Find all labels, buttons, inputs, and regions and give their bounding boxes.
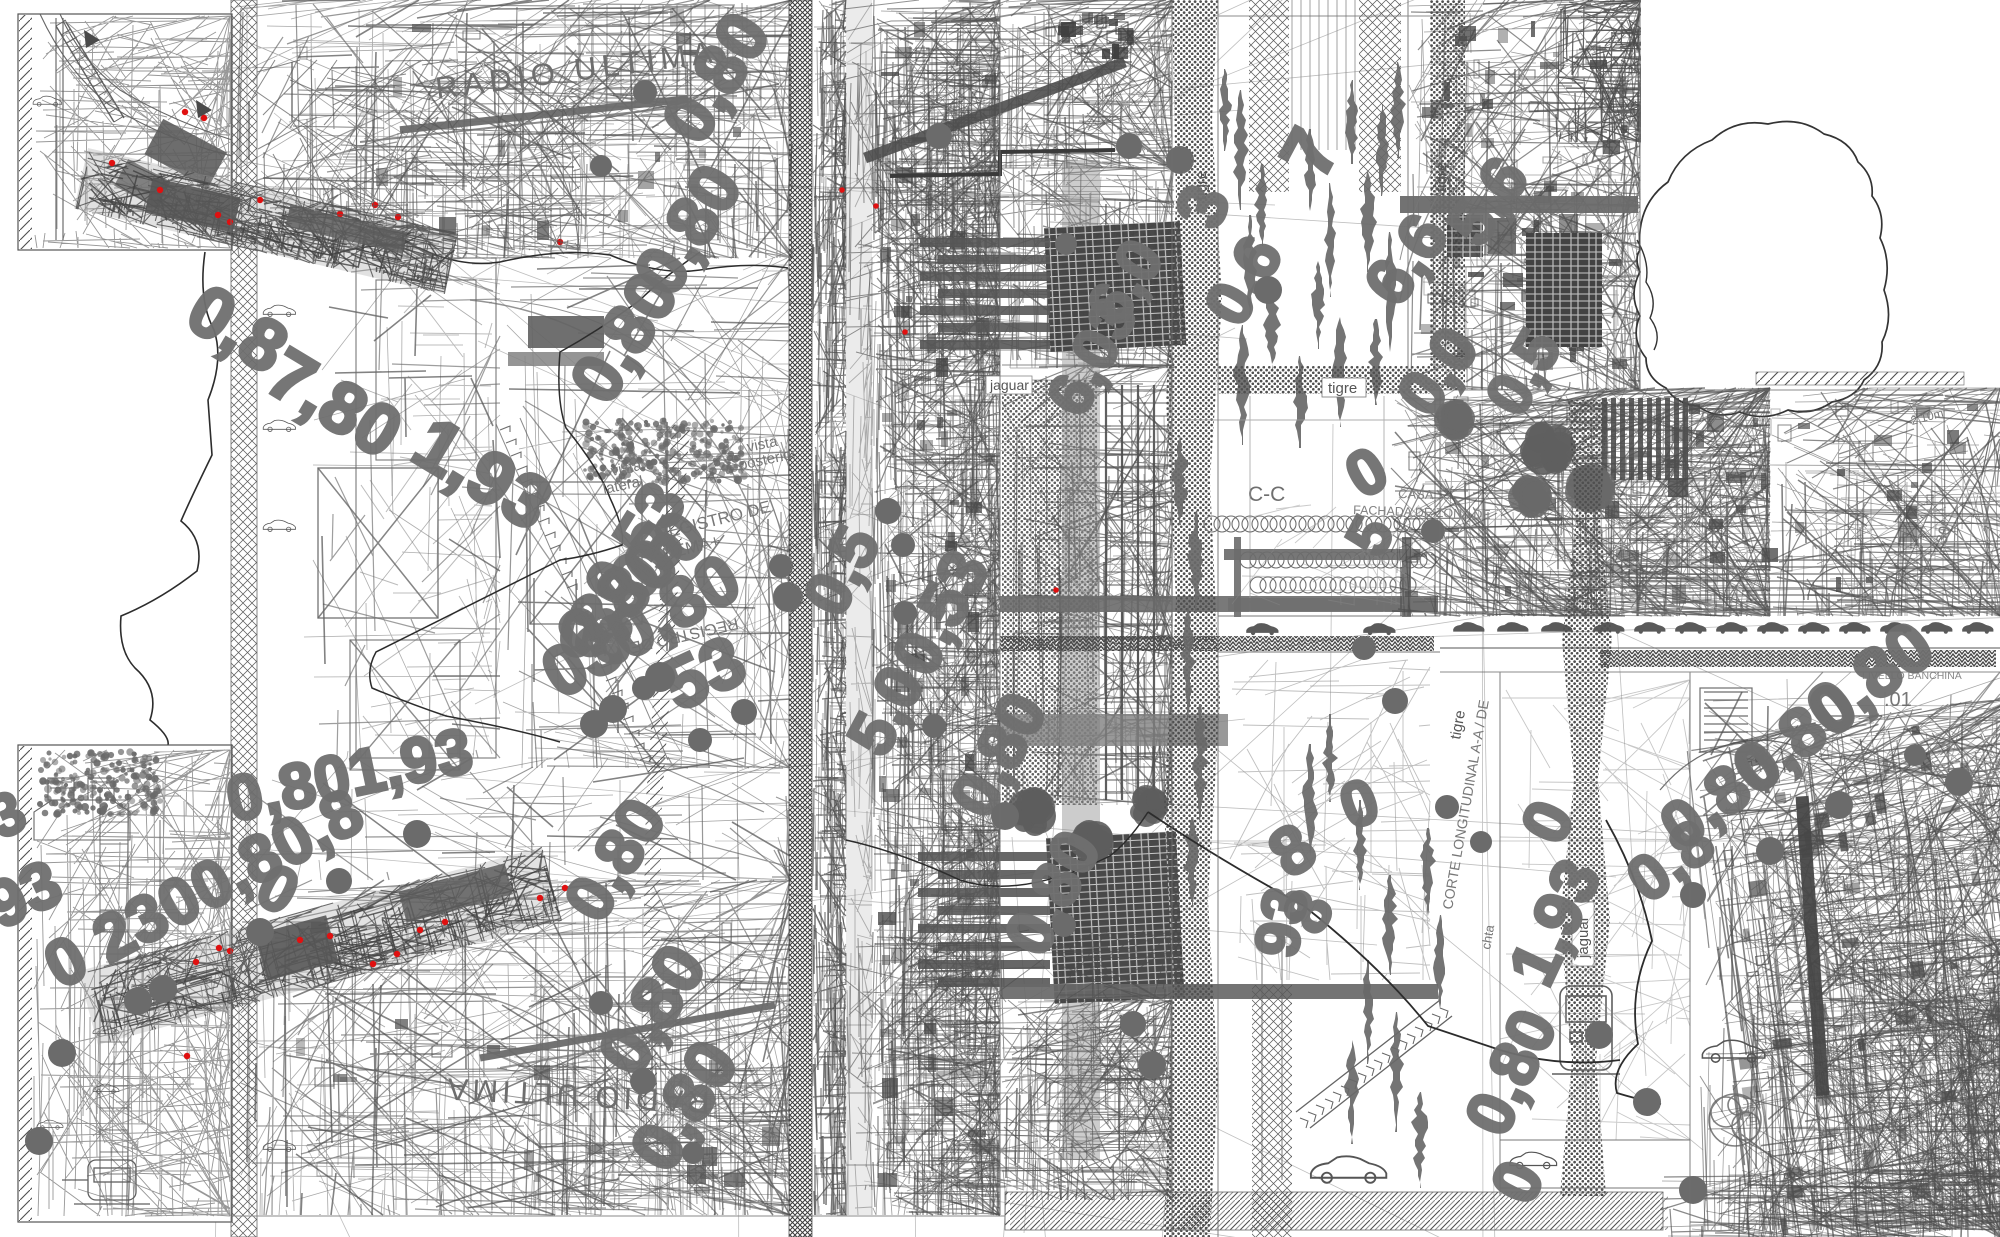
svg-text:C-C: C-C — [1248, 483, 1285, 506]
svg-text:93: 93 — [1242, 883, 1322, 963]
svg-text:03: 03 — [554, 593, 639, 679]
svg-text:tigre: tigre — [1328, 380, 1357, 397]
svg-text:CASA: CASA — [1398, 486, 1434, 502]
svg-text:tigre: tigre — [1433, 163, 1450, 192]
svg-text:jaguar: jaguar — [989, 377, 1029, 393]
